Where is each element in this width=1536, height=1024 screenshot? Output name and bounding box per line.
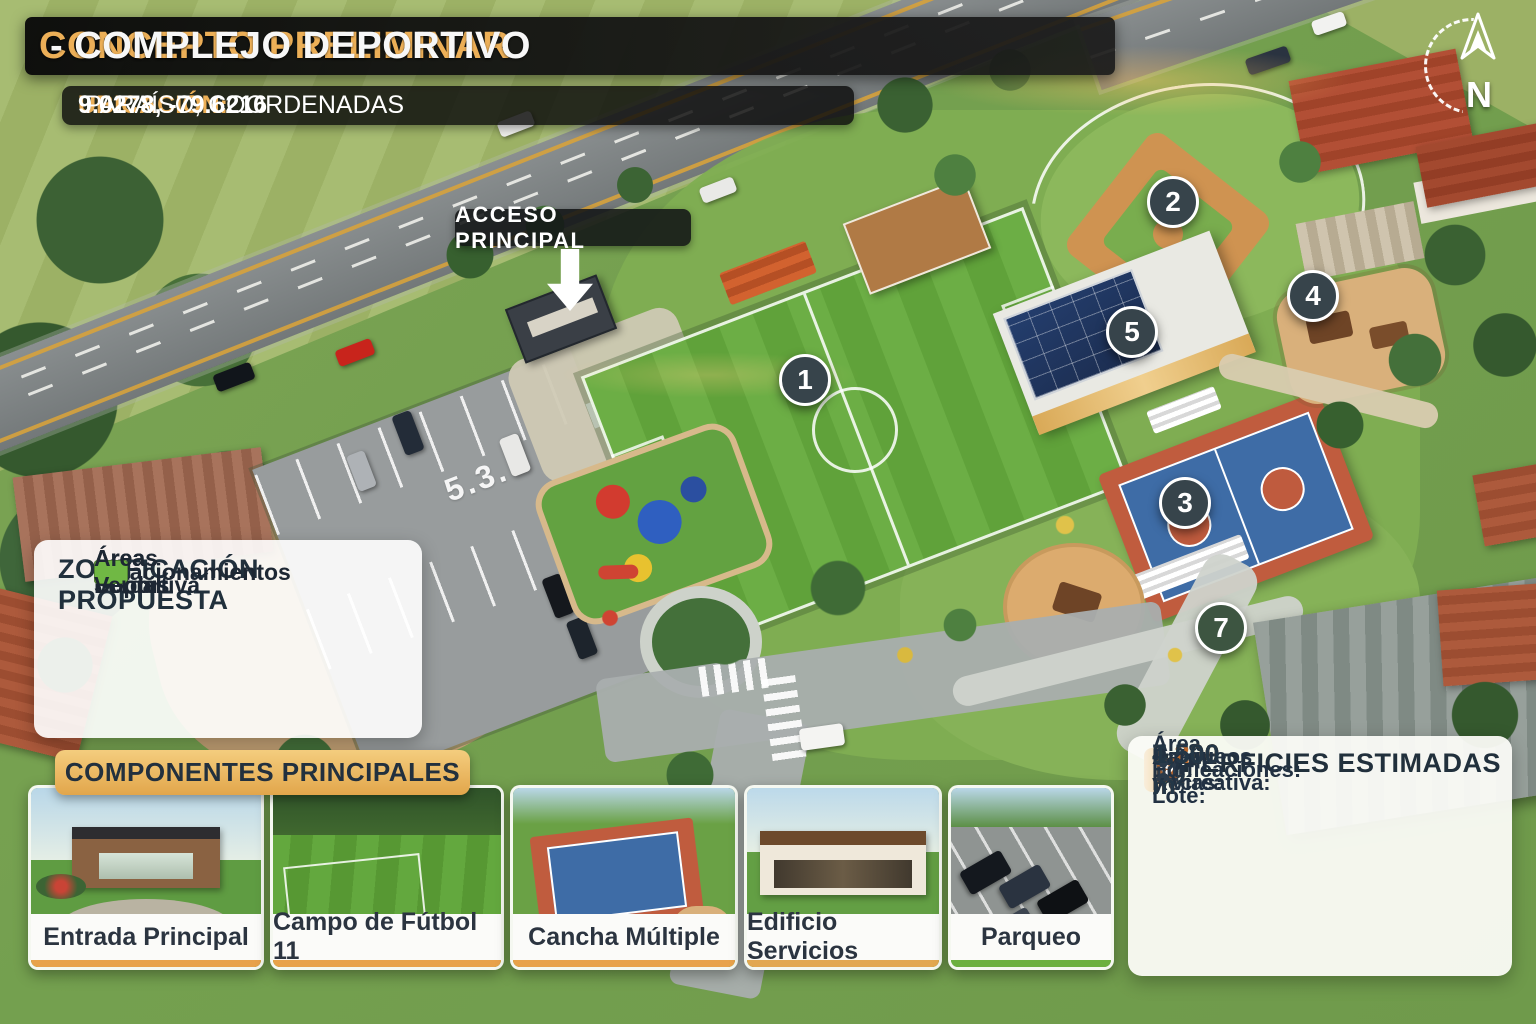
component-card-parqueo: Parqueo [948,785,1114,970]
thumb-treeline [951,788,1111,827]
red-roof-house [1472,462,1536,547]
card-caption: Parqueo [951,914,1111,960]
card-caption: Edificio Servicios [747,914,939,960]
access-callout-label: ACCESO PRINCIPAL [455,209,691,246]
thumb-entrance-building [72,827,219,888]
title-banner: CONCEPTO PRELIMINAR - COMPLEJO DEPORTIVO [25,17,1115,75]
card-accent [31,960,261,967]
marker-5: 5 [1106,306,1158,358]
card-caption: Entrada Principal [31,914,261,960]
components-header: COMPONENTES PRINCIPALES [55,750,470,795]
marker-1: 1 [779,354,831,406]
umbrella-red [591,480,635,524]
entrance-sign [527,297,598,337]
umbrella-blue [631,494,687,550]
legend-label: Áreas Verdes [94,545,169,599]
gym-equipment [1369,320,1411,349]
component-card-futbol: Campo de Fútbol 11 [270,785,504,970]
location-bar: UBICACIÓN: PARAÍSO, COORDENADAS 9.0278, … [62,86,854,125]
component-card-entrada: Entrada Principal [28,785,264,970]
surfaces-panel: SUPERFICIES ESTIMADAS Área del Lote: 7,2… [1128,736,1512,976]
card-accent [951,960,1111,967]
card-caption: Cancha Múltiple [513,914,735,960]
card-accent [513,960,735,967]
card-accent [747,960,939,967]
thumb-glass-band [774,860,913,888]
red-roof-house [1437,582,1536,687]
card-accent [273,960,501,967]
slide [598,564,638,579]
bus-on-road [1244,45,1291,75]
zoning-legend-panel: ZONIFICACIÓN PROPUESTA Área Deportiva Ár… [34,540,422,738]
thumb-flowers [36,874,87,899]
compass-north-letter: N [1466,74,1492,116]
marker-7: 7 [1195,602,1247,654]
thumb-services-building [760,831,925,895]
thumb-court [547,832,687,924]
component-card-edificio: Edificio Servicios [744,785,942,970]
surface-row-parqueos: Parqueos y Vías: 1,500 m² [1144,748,1160,792]
court-circle [1254,461,1311,518]
thumb-glass [99,853,193,879]
concept-infographic: 5.3. CONCEPTO PRELIMINAR - COMPLEJO DEPO… [0,0,1536,1024]
card-caption: Campo de Fútbol 11 [273,914,501,960]
surface-value: 1,500 m² [1152,739,1220,801]
component-card-cancha: Cancha Múltiple [510,785,738,970]
marker-4: 4 [1287,270,1339,322]
location-coordinates: 9.0278, -79.6216 [78,91,267,120]
page-title-rest: - COMPLEJO DEPORTIVO [39,25,531,68]
north-arrow-icon [1448,10,1508,76]
thumb-sky [513,788,735,824]
umbrella-navy [677,473,710,506]
marker-2: 2 [1147,176,1199,228]
marker-3: 3 [1159,477,1211,529]
